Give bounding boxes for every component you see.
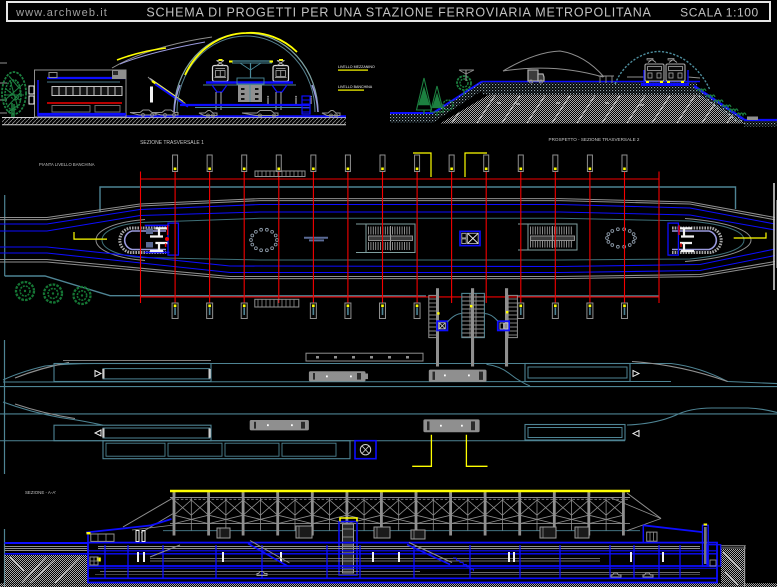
svg-text:www.archweb.it: www.archweb.it <box>15 7 108 19</box>
svg-text:SEZIONE TRASVERSALE 1: SEZIONE TRASVERSALE 1 <box>140 140 204 146</box>
svg-text:PROSPETTO - SEZIONE TRASVERSAL: PROSPETTO - SEZIONE TRASVERSALE 2 <box>549 137 640 142</box>
svg-text:SEZIONE - A-A': SEZIONE - A-A' <box>25 490 56 495</box>
svg-text:LIVELLO MEZZANINO: LIVELLO MEZZANINO <box>338 65 375 69</box>
svg-text:SCALA 1:100: SCALA 1:100 <box>680 6 759 20</box>
svg-text:LIVELLO BANCHINA: LIVELLO BANCHINA <box>338 85 373 89</box>
svg-text:SCHEMA DI PROGETTI PER UNA STA: SCHEMA DI PROGETTI PER UNA STAZIONE FERR… <box>146 6 651 20</box>
svg-text:PIANTA LIVELLO BANCHINA: PIANTA LIVELLO BANCHINA <box>39 162 95 167</box>
